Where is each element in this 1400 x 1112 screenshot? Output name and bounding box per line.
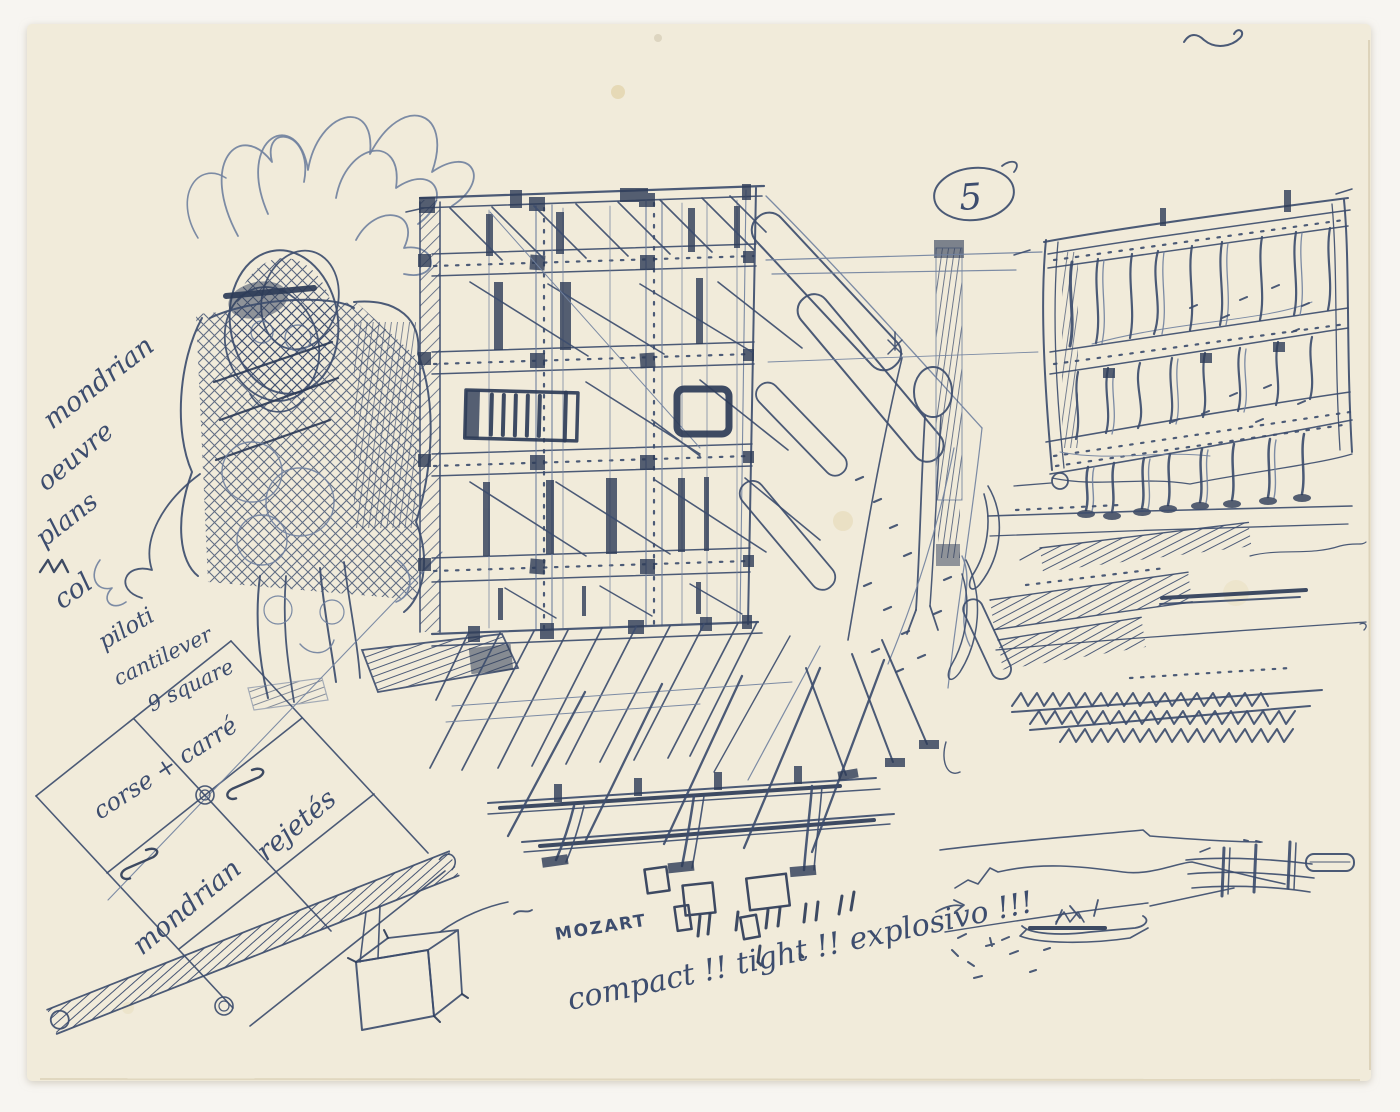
scanned-sketch-page: mondrian oeuvre plans col piloti cantile… bbox=[0, 0, 1400, 1112]
right-hatch-strip bbox=[934, 240, 964, 566]
sketch-canvas: mondrian oeuvre plans col piloti cantile… bbox=[0, 0, 1400, 1112]
paper-stain bbox=[611, 85, 625, 99]
sheet-number-digit: 5 bbox=[958, 176, 984, 218]
